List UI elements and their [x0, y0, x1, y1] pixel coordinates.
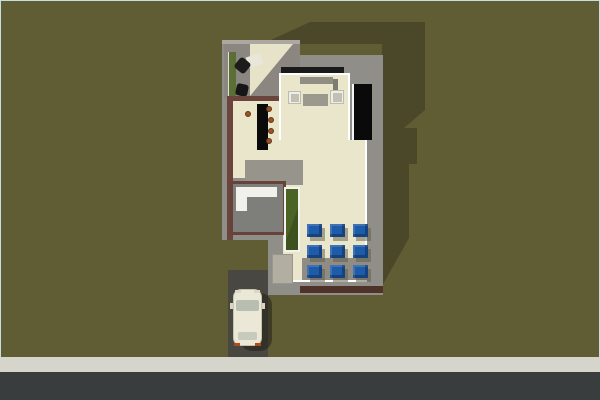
car-headlight-left	[235, 290, 241, 293]
patio-cushion-6[interactable]	[353, 245, 368, 258]
car-taillight-left	[234, 343, 240, 346]
patio-cushion-7[interactable]	[307, 265, 322, 278]
car-headlight-right	[254, 290, 260, 293]
patio-cushion-5[interactable]	[330, 245, 345, 258]
bar-stool-4[interactable]	[268, 128, 274, 134]
entry-mat	[272, 254, 293, 284]
living-rug	[303, 94, 328, 106]
stair-void	[352, 84, 372, 140]
patio-cushion-2[interactable]	[330, 224, 345, 237]
bar-stool-3[interactable]	[268, 117, 274, 123]
patio-cushion-1[interactable]	[307, 224, 322, 237]
car-rear-window	[238, 332, 257, 340]
car-mirror-right	[262, 303, 265, 309]
bar-stool-2[interactable]	[266, 106, 272, 112]
armchair-left-seat	[291, 94, 299, 102]
car-windshield	[236, 300, 259, 311]
bar-stool-1[interactable]	[245, 111, 251, 117]
bathroom-shower	[236, 187, 247, 211]
courtyard-planter[interactable]	[284, 187, 300, 252]
patio-cushion-4[interactable]	[307, 245, 322, 258]
render-viewport[interactable]	[0, 0, 600, 400]
car-mirror-left	[230, 303, 233, 309]
sidewalk	[0, 357, 600, 373]
office-chair-2[interactable]	[235, 83, 249, 97]
bar-stool-5[interactable]	[266, 138, 272, 144]
road	[0, 372, 600, 400]
rear-wall-band	[300, 286, 383, 293]
patio-cushion-8[interactable]	[330, 265, 345, 278]
patio-cushion-3[interactable]	[353, 224, 368, 237]
car-taillight-right	[255, 343, 261, 346]
armchair-right-seat	[333, 93, 342, 102]
patio-cushion-9[interactable]	[353, 265, 368, 278]
